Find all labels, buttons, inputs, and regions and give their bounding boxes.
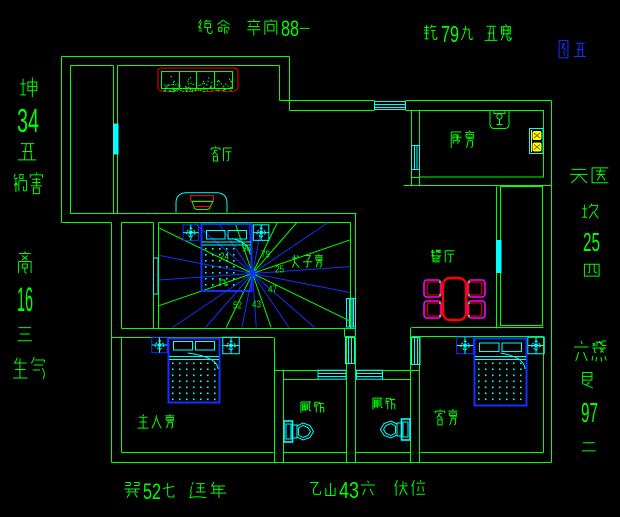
svg-text:25: 25	[275, 264, 284, 276]
svg-text:47: 47	[268, 284, 277, 296]
svg-text:79: 79	[261, 249, 270, 261]
svg-text:88: 88	[281, 16, 299, 41]
svg-text:52: 52	[233, 300, 242, 312]
svg-text:34: 34	[17, 103, 39, 140]
svg-text:96: 96	[242, 243, 251, 255]
svg-text:25: 25	[583, 227, 600, 257]
svg-text:43: 43	[339, 477, 359, 503]
svg-text:24: 24	[220, 251, 229, 263]
svg-text:79: 79	[441, 21, 459, 47]
svg-text:97: 97	[581, 397, 598, 428]
svg-text:43: 43	[252, 299, 261, 311]
svg-text:52: 52	[143, 479, 161, 504]
svg-text:16: 16	[17, 281, 33, 319]
